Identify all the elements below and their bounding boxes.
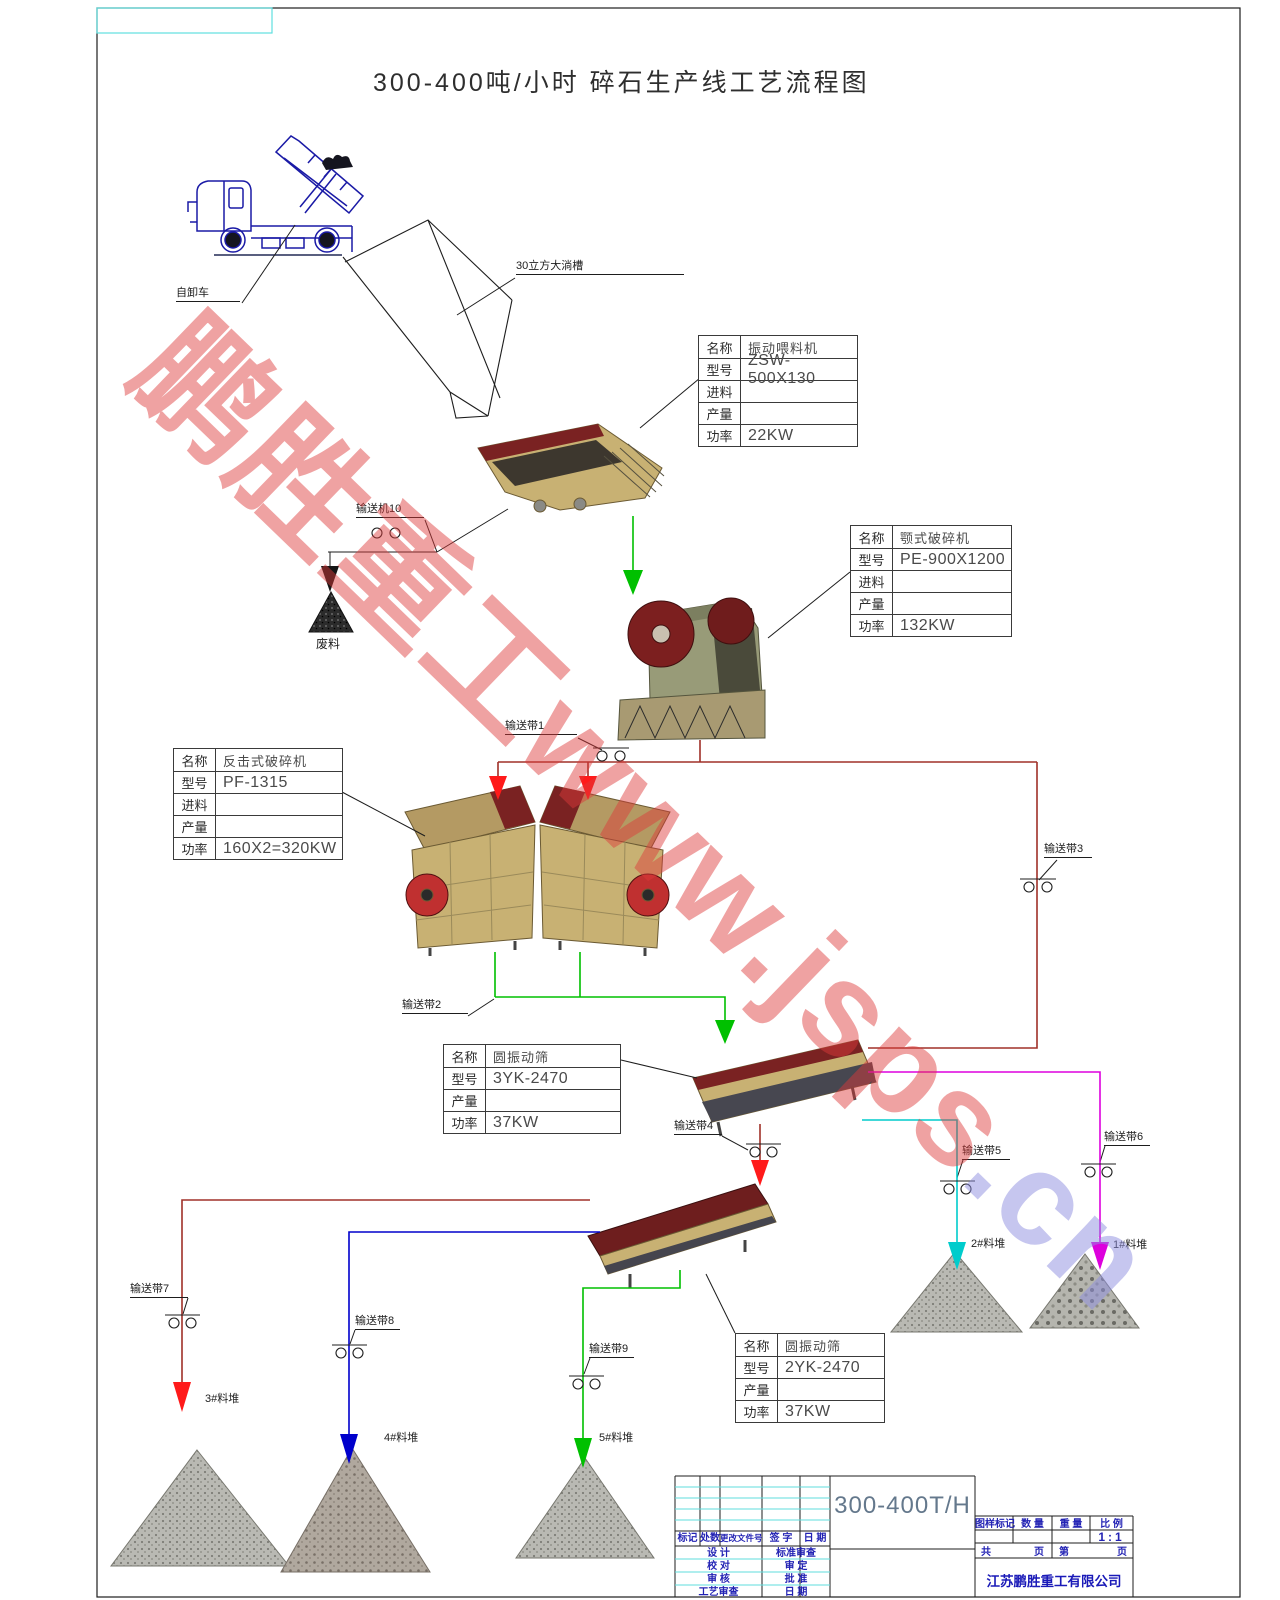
flow-blue-belt8	[349, 1232, 600, 1436]
label-belt-8: 输送带8	[355, 1315, 400, 1330]
table-row: 功率22KW	[699, 424, 857, 446]
table-row: 名称颚式破碎机	[851, 526, 1011, 548]
label-pile-5: 5#料堆	[599, 1432, 633, 1445]
table-row: 功率160X2=320KW	[174, 837, 342, 859]
table-row: 进料	[174, 793, 342, 815]
conveyor-symbol-9	[569, 1376, 604, 1389]
tb-rev-docno: 更改文件号	[720, 1532, 762, 1545]
table-row: 型号PF-1315	[174, 771, 342, 793]
tb-pages-no: 第	[1058, 1546, 1070, 1559]
flow-darkred-belt7	[182, 1200, 590, 1384]
waste-pile-image	[309, 592, 353, 632]
tb-weight: 重 量	[1052, 1518, 1090, 1531]
label-belt-5: 输送带5	[962, 1145, 1010, 1160]
tb-pages-sheet: 页	[1033, 1546, 1045, 1559]
arrow-to-screen-3yk	[715, 1020, 735, 1044]
conveyor-symbol-6	[1081, 1164, 1116, 1177]
table-row: 进料	[851, 570, 1011, 592]
conveyor-symbol-10	[372, 528, 400, 538]
tb-quantity: 数 量	[1013, 1518, 1052, 1531]
vibrating-feeder-image	[478, 424, 664, 512]
arrow-to-screen-2yk	[751, 1160, 769, 1186]
spec-table-screen-2yk: 名称圆振动筛 型号2YK-2470 产量 功率37KW	[735, 1333, 885, 1423]
impact-crusher-left-image	[405, 786, 535, 956]
label-belt-4: 输送带4	[674, 1120, 722, 1135]
table-row: 名称圆振动筛	[736, 1334, 884, 1356]
tb-role-std-review: 标准审查	[762, 1547, 830, 1560]
tb-role-approve2: 批 准	[762, 1573, 830, 1586]
company-name: 江苏鹏胜重工有限公司	[978, 1570, 1130, 1590]
tb-role-process-review: 工艺审查	[675, 1586, 762, 1599]
spec-table-feeder: 名称振动喂料机 型号ZSW-500X130 进料 产量 功率22KW	[698, 335, 858, 447]
flow-cyan-belt5	[862, 1120, 957, 1244]
table-row: 功率37KW	[736, 1400, 884, 1422]
impact-crusher-right-image	[540, 786, 670, 956]
label-pile-4: 4#料堆	[384, 1432, 418, 1445]
table-row: 功率132KW	[851, 614, 1011, 636]
pile-1-image	[1030, 1254, 1139, 1328]
jaw-crusher-image	[618, 598, 765, 740]
table-row: 产量	[736, 1378, 884, 1400]
tb-role-review: 审 核	[675, 1573, 762, 1586]
table-row: 型号ZSW-500X130	[699, 358, 857, 380]
label-pile-3: 3#料堆	[205, 1393, 239, 1406]
tb-rev-signature: 签 字	[762, 1532, 800, 1545]
flow-darkred-jaw-split	[498, 740, 1037, 778]
tb-rev-date: 日 期	[800, 1532, 830, 1545]
table-row: 功率37KW	[444, 1111, 620, 1133]
tb-role-check: 校 对	[675, 1560, 762, 1573]
label-belt-1: 输送带1	[505, 720, 577, 735]
label-belt-6: 输送带6	[1104, 1131, 1150, 1146]
arrow-to-pile-3	[173, 1382, 191, 1412]
conveyor-symbol-4	[746, 1144, 781, 1157]
conveyor-symbol-3	[1020, 879, 1056, 892]
label-pile-1: 1#料堆	[1113, 1239, 1147, 1252]
table-row: 产量	[444, 1089, 620, 1111]
label-belt-2: 输送带2	[402, 999, 468, 1014]
label-belt-3: 输送带3	[1044, 843, 1092, 858]
table-row: 型号2YK-2470	[736, 1356, 884, 1378]
page-title: 300-400吨/小时 碎石生产线工艺流程图	[373, 63, 870, 99]
table-row: 名称反击式破碎机	[174, 749, 342, 771]
dump-truck-image	[188, 136, 363, 255]
table-row: 进料	[699, 380, 857, 402]
label-belt-7: 输送带7	[130, 1283, 188, 1298]
table-row: 型号3YK-2470	[444, 1067, 620, 1089]
table-row: 名称圆振动筛	[444, 1045, 620, 1067]
tb-scale-value: 1:1	[1090, 1530, 1133, 1544]
hopper-drawing	[343, 220, 512, 418]
pile-4-image	[281, 1448, 430, 1572]
label-pile-2: 2#料堆	[971, 1238, 1005, 1251]
label-belt-9: 输送带9	[589, 1343, 634, 1358]
tb-role-approve1: 审 定	[762, 1560, 830, 1573]
table-row: 产量	[174, 815, 342, 837]
tb-rev-mark: 标记	[675, 1532, 700, 1545]
drawing-code: 300-400T/H	[831, 1492, 974, 1520]
arrow-to-jaw-crusher	[623, 570, 643, 595]
label-hopper: 30立方大淌槽	[516, 260, 684, 275]
tb-pages-total: 共	[980, 1546, 992, 1559]
pile-3-image	[111, 1450, 289, 1566]
pile-5-image	[516, 1458, 654, 1558]
tb-pages-sheet2: 页	[1116, 1546, 1128, 1559]
spec-table-jaw-crusher: 名称颚式破碎机 型号PE-900X1200 进料 产量 功率132KW	[850, 525, 1012, 637]
table-row: 型号PE-900X1200	[851, 548, 1011, 570]
tb-role-design: 设 计	[675, 1547, 762, 1560]
spec-table-screen-3yk: 名称圆振动筛 型号3YK-2470 产量 功率37KW	[443, 1044, 621, 1134]
label-dump-truck: 自卸车	[176, 287, 240, 302]
screen-2yk-image	[588, 1184, 776, 1288]
flow-darkred-belt3	[868, 762, 1037, 1048]
table-row: 产量	[851, 592, 1011, 614]
arrow-to-waste-pile	[321, 566, 339, 592]
flow-diagram-page: 300-400吨/小时 碎石生产线工艺流程图 自卸车 30立方大淌槽 输送机10…	[0, 0, 1280, 1600]
conveyor-symbol-1	[593, 748, 629, 761]
tb-rev-count: 处数	[700, 1532, 720, 1545]
table-row: 产量	[699, 402, 857, 424]
tb-sample-mark: 图样标记	[975, 1518, 1013, 1531]
spec-table-impact-crusher: 名称反击式破碎机 型号PF-1315 进料 产量 功率160X2=320KW	[173, 748, 343, 860]
label-waste-pile: 废料	[316, 638, 340, 651]
label-conveyor-10: 输送机10	[356, 503, 424, 518]
tb-role-date: 日 期	[762, 1586, 830, 1599]
flow-green-belt2	[495, 952, 725, 1022]
